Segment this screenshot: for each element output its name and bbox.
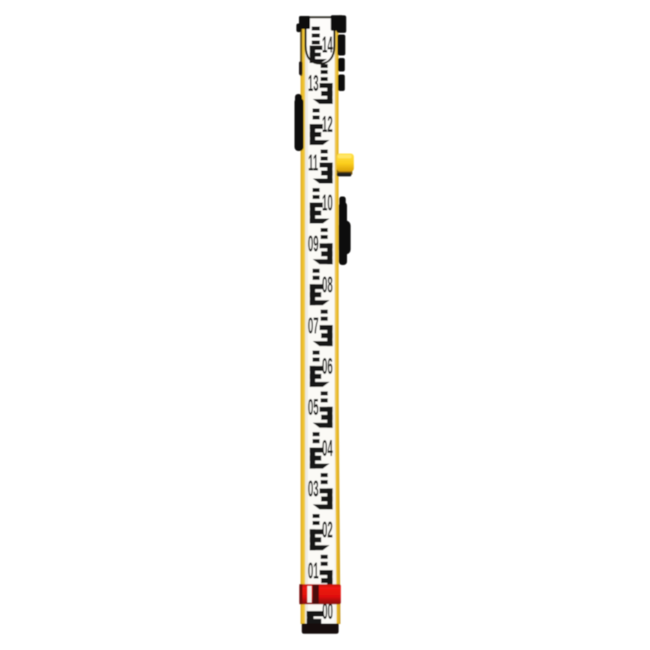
svg-text:13: 13: [308, 70, 319, 96]
svg-text:12: 12: [322, 111, 333, 137]
svg-text:01: 01: [308, 557, 319, 583]
svg-text:07: 07: [308, 312, 319, 338]
svg-text:09: 09: [308, 231, 319, 257]
svg-text:08: 08: [322, 272, 333, 298]
svg-text:14: 14: [322, 32, 333, 58]
svg-text:11: 11: [308, 150, 318, 176]
svg-text:03: 03: [308, 476, 319, 502]
svg-text:05: 05: [308, 394, 319, 420]
svg-text:10: 10: [322, 190, 333, 216]
svg-text:04: 04: [322, 435, 333, 461]
svg-text:06: 06: [322, 353, 333, 379]
svg-text:02: 02: [322, 517, 333, 543]
